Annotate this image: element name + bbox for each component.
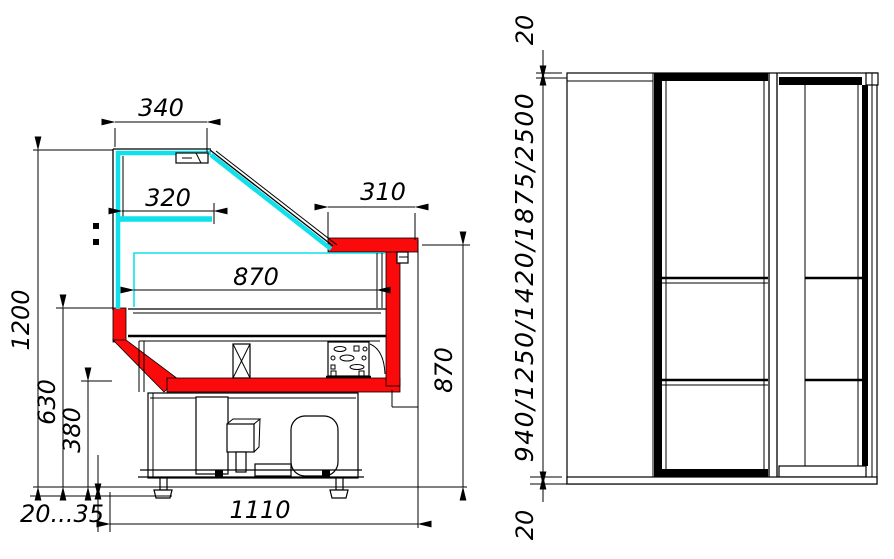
rear-clip <box>397 252 408 263</box>
air-duct <box>196 397 228 474</box>
dim-20-top: 20 <box>511 15 539 46</box>
dim-340: 340 <box>138 94 184 122</box>
dim-870-rear: 870 <box>430 347 458 393</box>
dim-870-deck: 870 <box>233 263 279 291</box>
left-post <box>654 73 662 477</box>
dim-heights: 940/1250/1420/1875/2500 <box>510 92 539 462</box>
bottom-band-middle <box>662 469 768 477</box>
engineering-drawing-canvas: 340 320 310 870 1200 630 380 <box>0 0 894 559</box>
dim-310: 310 <box>360 178 406 206</box>
red-bumper-profile <box>113 238 418 392</box>
front-view: 20 940/1250/1420/1875/2500 20 <box>510 15 878 541</box>
dim-1110: 1110 <box>229 496 290 524</box>
right-post <box>862 85 868 466</box>
dim-380: 380 <box>58 407 86 453</box>
dim-320: 320 <box>145 184 191 212</box>
machine-compartment <box>138 393 364 498</box>
insulation-block <box>233 344 250 378</box>
adjustable-foot-right <box>330 478 348 498</box>
side-section-view: 340 320 310 870 1200 630 380 <box>7 94 470 532</box>
dim-630: 630 <box>33 379 61 425</box>
display-case-drawing: 340 320 310 870 1200 630 380 <box>0 0 894 559</box>
glass-clip <box>93 239 99 245</box>
plinth <box>567 477 877 484</box>
dim-20-bottom: 20 <box>511 510 539 541</box>
top-band-right <box>779 77 862 85</box>
dimensions-front-view: 20 940/1250/1420/1875/2500 20 <box>510 15 567 541</box>
top-band-middle <box>662 73 768 81</box>
dim-legs: 20...35 <box>20 500 104 528</box>
adjustable-foot-left <box>154 478 172 498</box>
electrical-panel <box>326 342 371 377</box>
glass-clip <box>93 223 99 229</box>
compressor <box>291 416 338 476</box>
lamp-housing <box>176 153 208 163</box>
dim-1200: 1200 <box>7 289 35 350</box>
